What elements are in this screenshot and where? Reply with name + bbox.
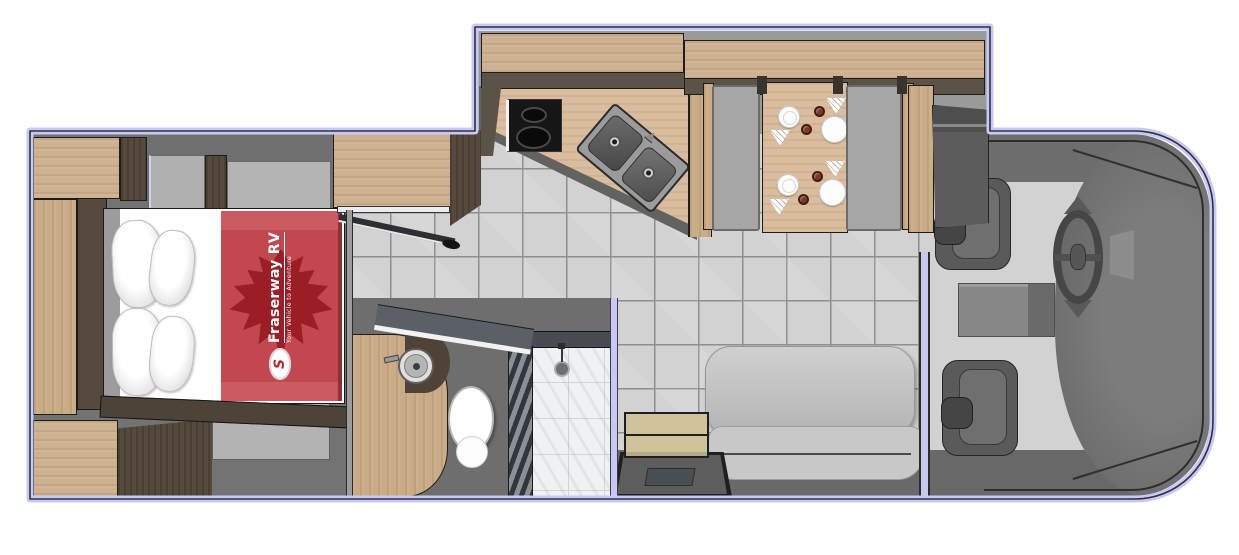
place-setting-napkin-2 — [826, 98, 846, 114]
driver-seat — [942, 360, 1018, 456]
place-setting-napkin-3 — [769, 199, 789, 215]
headboard-shelf-panel-left — [149, 155, 205, 211]
place-setting-mug-1 — [801, 124, 812, 135]
place-setting-plate-1 — [821, 116, 848, 143]
place-setting-saucer-1 — [778, 106, 800, 128]
headboard-shelf-divider — [205, 155, 227, 211]
bathroom-left-wall — [346, 210, 353, 498]
cooktop-burner-small — [521, 107, 547, 123]
dash-highlight-wedge — [1110, 230, 1134, 280]
fraserway-logo-lockup: S Fraserway RV Your Vehicle to Adventure — [257, 221, 303, 391]
entry-step-divider — [626, 434, 707, 436]
place-setting-plate-2 — [819, 179, 846, 206]
bathroom-sink — [398, 348, 434, 384]
fraserway-badge-icon: S — [269, 348, 291, 380]
bedroom-cabinet-bottom-side — [118, 419, 212, 497]
shower-head-icon — [554, 361, 570, 377]
place-setting-napkin-1 — [770, 130, 790, 146]
place-setting-napkin-4 — [825, 161, 845, 177]
bed-blanket: S Fraserway RV Your Vehicle to Adventure — [221, 211, 342, 401]
dinette-bench-right — [846, 85, 902, 231]
dinette-bench-left — [712, 85, 760, 231]
window-post-1 — [757, 76, 767, 94]
shower-pipe — [561, 347, 563, 362]
window-post-3 — [897, 76, 907, 94]
cooktop-burner-large — [516, 126, 551, 149]
shower-stall — [508, 331, 612, 497]
window-post-2 — [833, 76, 843, 94]
dinette-table — [762, 82, 848, 233]
entry-steps — [624, 412, 709, 458]
fridge-wood-surround — [908, 85, 934, 233]
sofa-seat — [708, 426, 924, 480]
cooktop — [506, 99, 562, 152]
cab-console — [958, 283, 1055, 337]
fraserway-badge-glyph: S — [273, 359, 287, 369]
brand-tagline-label: Your Vehicle to Adventure — [286, 256, 293, 343]
shower-louver-door — [508, 346, 533, 497]
wardrobe-cabinet — [333, 130, 451, 208]
kitchen-overhead-cabinet — [481, 33, 684, 73]
place-setting-saucer-2 — [777, 174, 799, 196]
bedroom-wardrobe-left-wall — [33, 199, 77, 415]
sink-drain — [413, 363, 420, 370]
sofa-backrest — [705, 346, 915, 436]
brand-name-label: Fraserway RV — [267, 232, 285, 343]
shower-valve — [558, 343, 565, 349]
cab-partition-wall — [919, 252, 930, 497]
refrigerator — [932, 105, 989, 228]
steering-wheel-icon — [1053, 210, 1103, 304]
entry-door-mat — [644, 468, 695, 486]
sofa-seat-seam — [723, 453, 911, 455]
toilet-lid — [456, 436, 488, 468]
shower-wall-marble — [532, 346, 612, 497]
bathroom-right-wall — [610, 298, 618, 497]
place-setting-mug-2 — [814, 106, 825, 117]
bedroom-cabinet-bottom-left — [33, 420, 118, 497]
wardrobe-shelf-edge — [337, 206, 450, 213]
steering-wheel-hub — [1070, 244, 1086, 270]
rv-floorplan-canvas: S Fraserway RV Your Vehicle to Adventure — [0, 0, 1239, 555]
bedroom-cabinet-top-side — [120, 137, 147, 201]
kitchen-cabinet-underside — [481, 72, 700, 89]
headboard-shelf-panel-right — [227, 161, 331, 211]
bedroom-cabinet-top-left — [33, 137, 120, 199]
place-setting-mug-3 — [798, 194, 809, 205]
place-setting-mug-4 — [812, 171, 823, 182]
dinette-overhead-cabinet — [684, 40, 985, 79]
